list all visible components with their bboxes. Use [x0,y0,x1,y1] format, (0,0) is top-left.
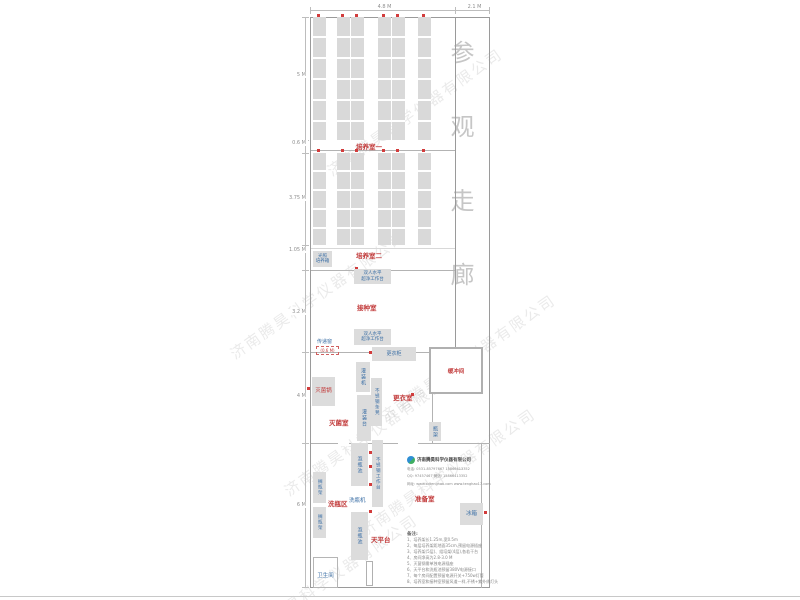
floorplan-canvas: 济南腾昊科学仪器有限公司 济南腾昊科学仪器有限公司 济南腾昊科学仪器有限公司 济… [0,0,800,600]
equip-locker: 更衣柜 [372,347,416,361]
dimension-label-3-75m: 3.75 M [280,195,308,201]
dimension-label-0-6m: 0.6 M [282,140,308,146]
equip-sterilizer: 灭菌锅 [312,377,335,406]
buffer-room-label: 缓冲间 [448,367,465,375]
culture-rack [418,153,431,245]
equip-bottle-rack: 瓶架 [429,422,441,441]
room2-label: 培养室二 [356,250,382,260]
notes-list: 1、培养架长1.25m,宽0.5m2、每层培养架距地面35cm,预留电源插座3、… [407,537,487,585]
dimension-label-5m: 5 M [286,72,308,78]
red-marker-dot [422,149,425,152]
culture-rack [313,153,326,245]
equip-filling-table: 灌装台 [357,395,371,441]
red-marker-dot [317,149,320,152]
dimension-label-1-05m: 1.05 M [280,247,308,253]
dimension-label-6m: 6 M [288,502,308,508]
equip-fridge: 冰箱 [460,503,483,525]
culture-rack [337,17,350,140]
page-edge-line [0,596,800,597]
equip-soak-pool-1: 泡瓶池 [351,443,368,486]
door-gap [338,441,349,446]
dimension-tick [302,17,309,18]
equip-light-incubator: 光照 培养箱 [313,251,332,267]
culture-rack [392,17,405,140]
red-marker-dot [307,387,310,390]
culture-rack [378,17,391,140]
dimension-label-top-right: 2.1 M [455,4,494,10]
equip-shelf-rack-2: 搁瓶架 [313,507,326,538]
company-phone: 电话: 0531-85797667 15866413352 [407,467,497,472]
sterilization-room-label: 灭菌室 [329,417,349,427]
culture-rack [351,153,364,245]
corridor-wall [455,17,456,347]
buffer-room: 缓冲间 [429,347,483,394]
equip-filling-machine: 灌装机 [356,362,370,392]
room1-label: 培养室一 [356,141,382,151]
culture-rack [337,153,350,245]
red-marker-dot [341,149,344,152]
red-marker-dot [396,149,399,152]
dimension-label-4m: 4 M [288,393,308,399]
inoculation-room-label: 接种室 [357,302,377,312]
equip-soak-pool-2: 泡瓶池 [351,512,368,560]
equip-clean-bench-2: 双人水平 超净工作台 [354,329,391,345]
culture-rack [418,17,431,140]
company-block: 济南腾昊科学仪器有限公司 电话: 0531-85797667 158664133… [407,456,497,487]
red-marker-dot [382,149,385,152]
red-marker-dot [422,14,425,17]
equip-steel-table: 不锈钢工作台 [372,440,383,507]
culture-rack [378,153,391,245]
equip-steel-bench: 不锈钢条凳 [371,378,382,426]
dimension-label-top-left: 4.8 M [310,4,459,10]
dimension-tick [302,352,309,353]
equip-shelf-rack-1: 搁瓶架 [313,472,326,503]
changing-room-label: 更衣室 [393,392,413,402]
red-marker-dot [355,14,358,17]
red-marker-dot [341,14,344,17]
company-logo-icon [407,456,415,464]
dimension-tick [302,270,309,271]
company-web: 网址: www.sdtenghao.com www.tenghao17.com [407,482,497,487]
door-gap [398,441,418,446]
door-leaf [366,561,373,586]
bottle-washer-label: 洗瓶机 [349,496,366,504]
note-line: 8、培养室和接种室预留风道一样,不锈+紫外线灯头 [407,579,487,585]
company-name: 济南腾昊科学仪器有限公司 [417,457,471,463]
pass-window-label: 传递窗 [317,338,332,345]
red-marker-dot [484,511,487,514]
toilet-room: 卫生间 [313,557,338,588]
notes-block: 备注: 1、培养架长1.25m,宽0.5m2、每层培养架距地面35cm,预留电源… [407,531,487,585]
dimension-tick [302,443,309,444]
dimension-line-top [310,10,490,11]
balance-table-label: 天平台 [371,534,391,544]
dimension-label-3-2m: 3.2 M [284,309,308,315]
red-marker-dot [369,510,372,513]
toilet-label: 卫生间 [317,571,334,579]
pass-window-size: (0.6 M) [316,346,339,355]
culture-rack [392,153,405,245]
red-marker-dot [396,14,399,17]
equip-clean-bench-1: 双人水平 超净工作台 [354,269,391,284]
dimension-tick [302,245,309,246]
washing-area-label: 洗瓶区 [328,498,348,508]
culture-rack [351,17,364,140]
red-marker-dot [317,14,320,17]
dimension-tick [302,153,309,154]
culture-rack [313,17,326,140]
preparation-room-label: 准备室 [415,493,435,503]
rack-area-line [311,248,455,249]
company-qq: QQ: 97457467 微信: 15866413352 [407,474,497,479]
dimension-tick [302,587,309,588]
red-marker-dot [382,14,385,17]
